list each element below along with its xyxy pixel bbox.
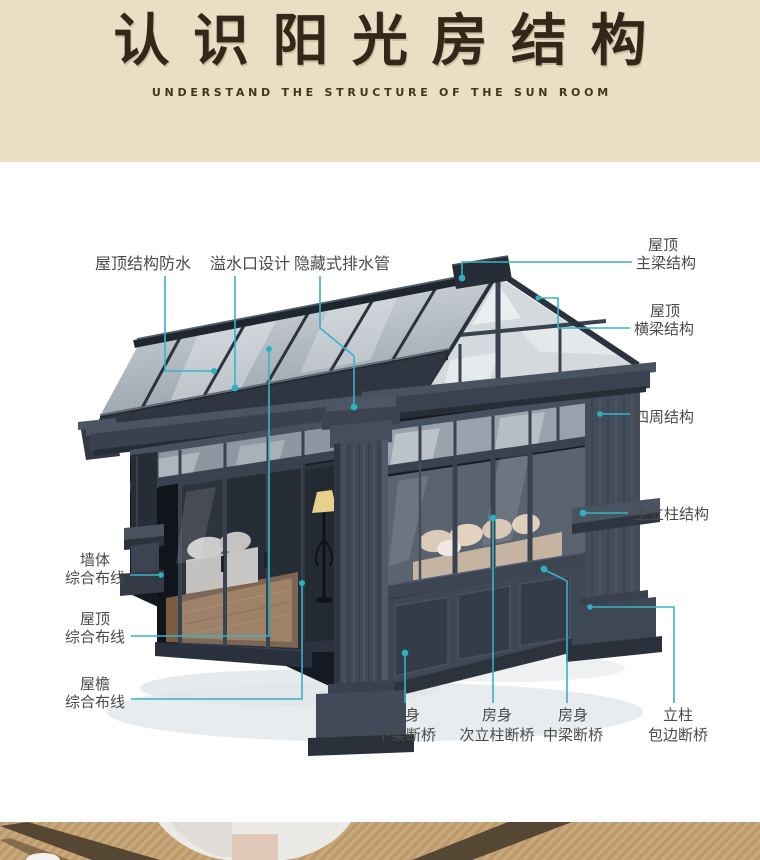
label-wall-wiring-2: 综合布线	[65, 569, 125, 587]
label-main-column: 主立柱结构	[634, 505, 709, 523]
page: 认识阳光房结构 UNDERSTAND THE STRUCTURE OF THE …	[0, 0, 760, 860]
label-roof-main-beam-1: 屋顶	[648, 236, 678, 254]
label-eave-wiring-1: 屋檐	[80, 675, 110, 693]
label-sub-column-2: 次立柱断桥	[459, 726, 534, 744]
label-overflow: 溢水口设计	[210, 254, 290, 273]
label-eave-wiring-2: 综合布线	[65, 693, 125, 711]
label-roof-wiring-1: 屋顶	[80, 610, 110, 628]
label-mid-beam-2: 中梁断桥	[543, 726, 603, 744]
left-wall	[120, 419, 338, 690]
label-column-edge-1: 立柱	[663, 706, 693, 724]
label-column-edge-2: 包边断桥	[648, 726, 708, 744]
label-roof-cross-beam-1: 屋顶	[650, 302, 680, 320]
sunroom-structure-diagram: 屋顶结构防水 溢水口设计 隐藏式排水管 屋顶 主梁结构	[0, 0, 760, 860]
label-mid-beam-1: 房身	[558, 706, 588, 724]
label-hidden-drain: 隐藏式排水管	[294, 254, 390, 273]
label-wall-wiring-1: 墙体	[80, 551, 110, 569]
bottom-photo-strip	[0, 822, 760, 860]
label-surround: 四周结构	[634, 408, 694, 426]
label-sub-column-1: 房身	[482, 706, 512, 724]
label-roof-main-beam-2: 主梁结构	[636, 254, 696, 272]
label-roof-cross-beam-2: 横梁结构	[634, 320, 694, 338]
label-lower-beam-1: 房身	[390, 706, 420, 724]
right-wall	[381, 393, 590, 700]
label-roof-waterproof: 屋顶结构防水	[95, 254, 191, 273]
label-lower-beam-2: 下梁断桥	[376, 726, 436, 744]
label-roof-wiring-2: 综合布线	[65, 628, 125, 646]
